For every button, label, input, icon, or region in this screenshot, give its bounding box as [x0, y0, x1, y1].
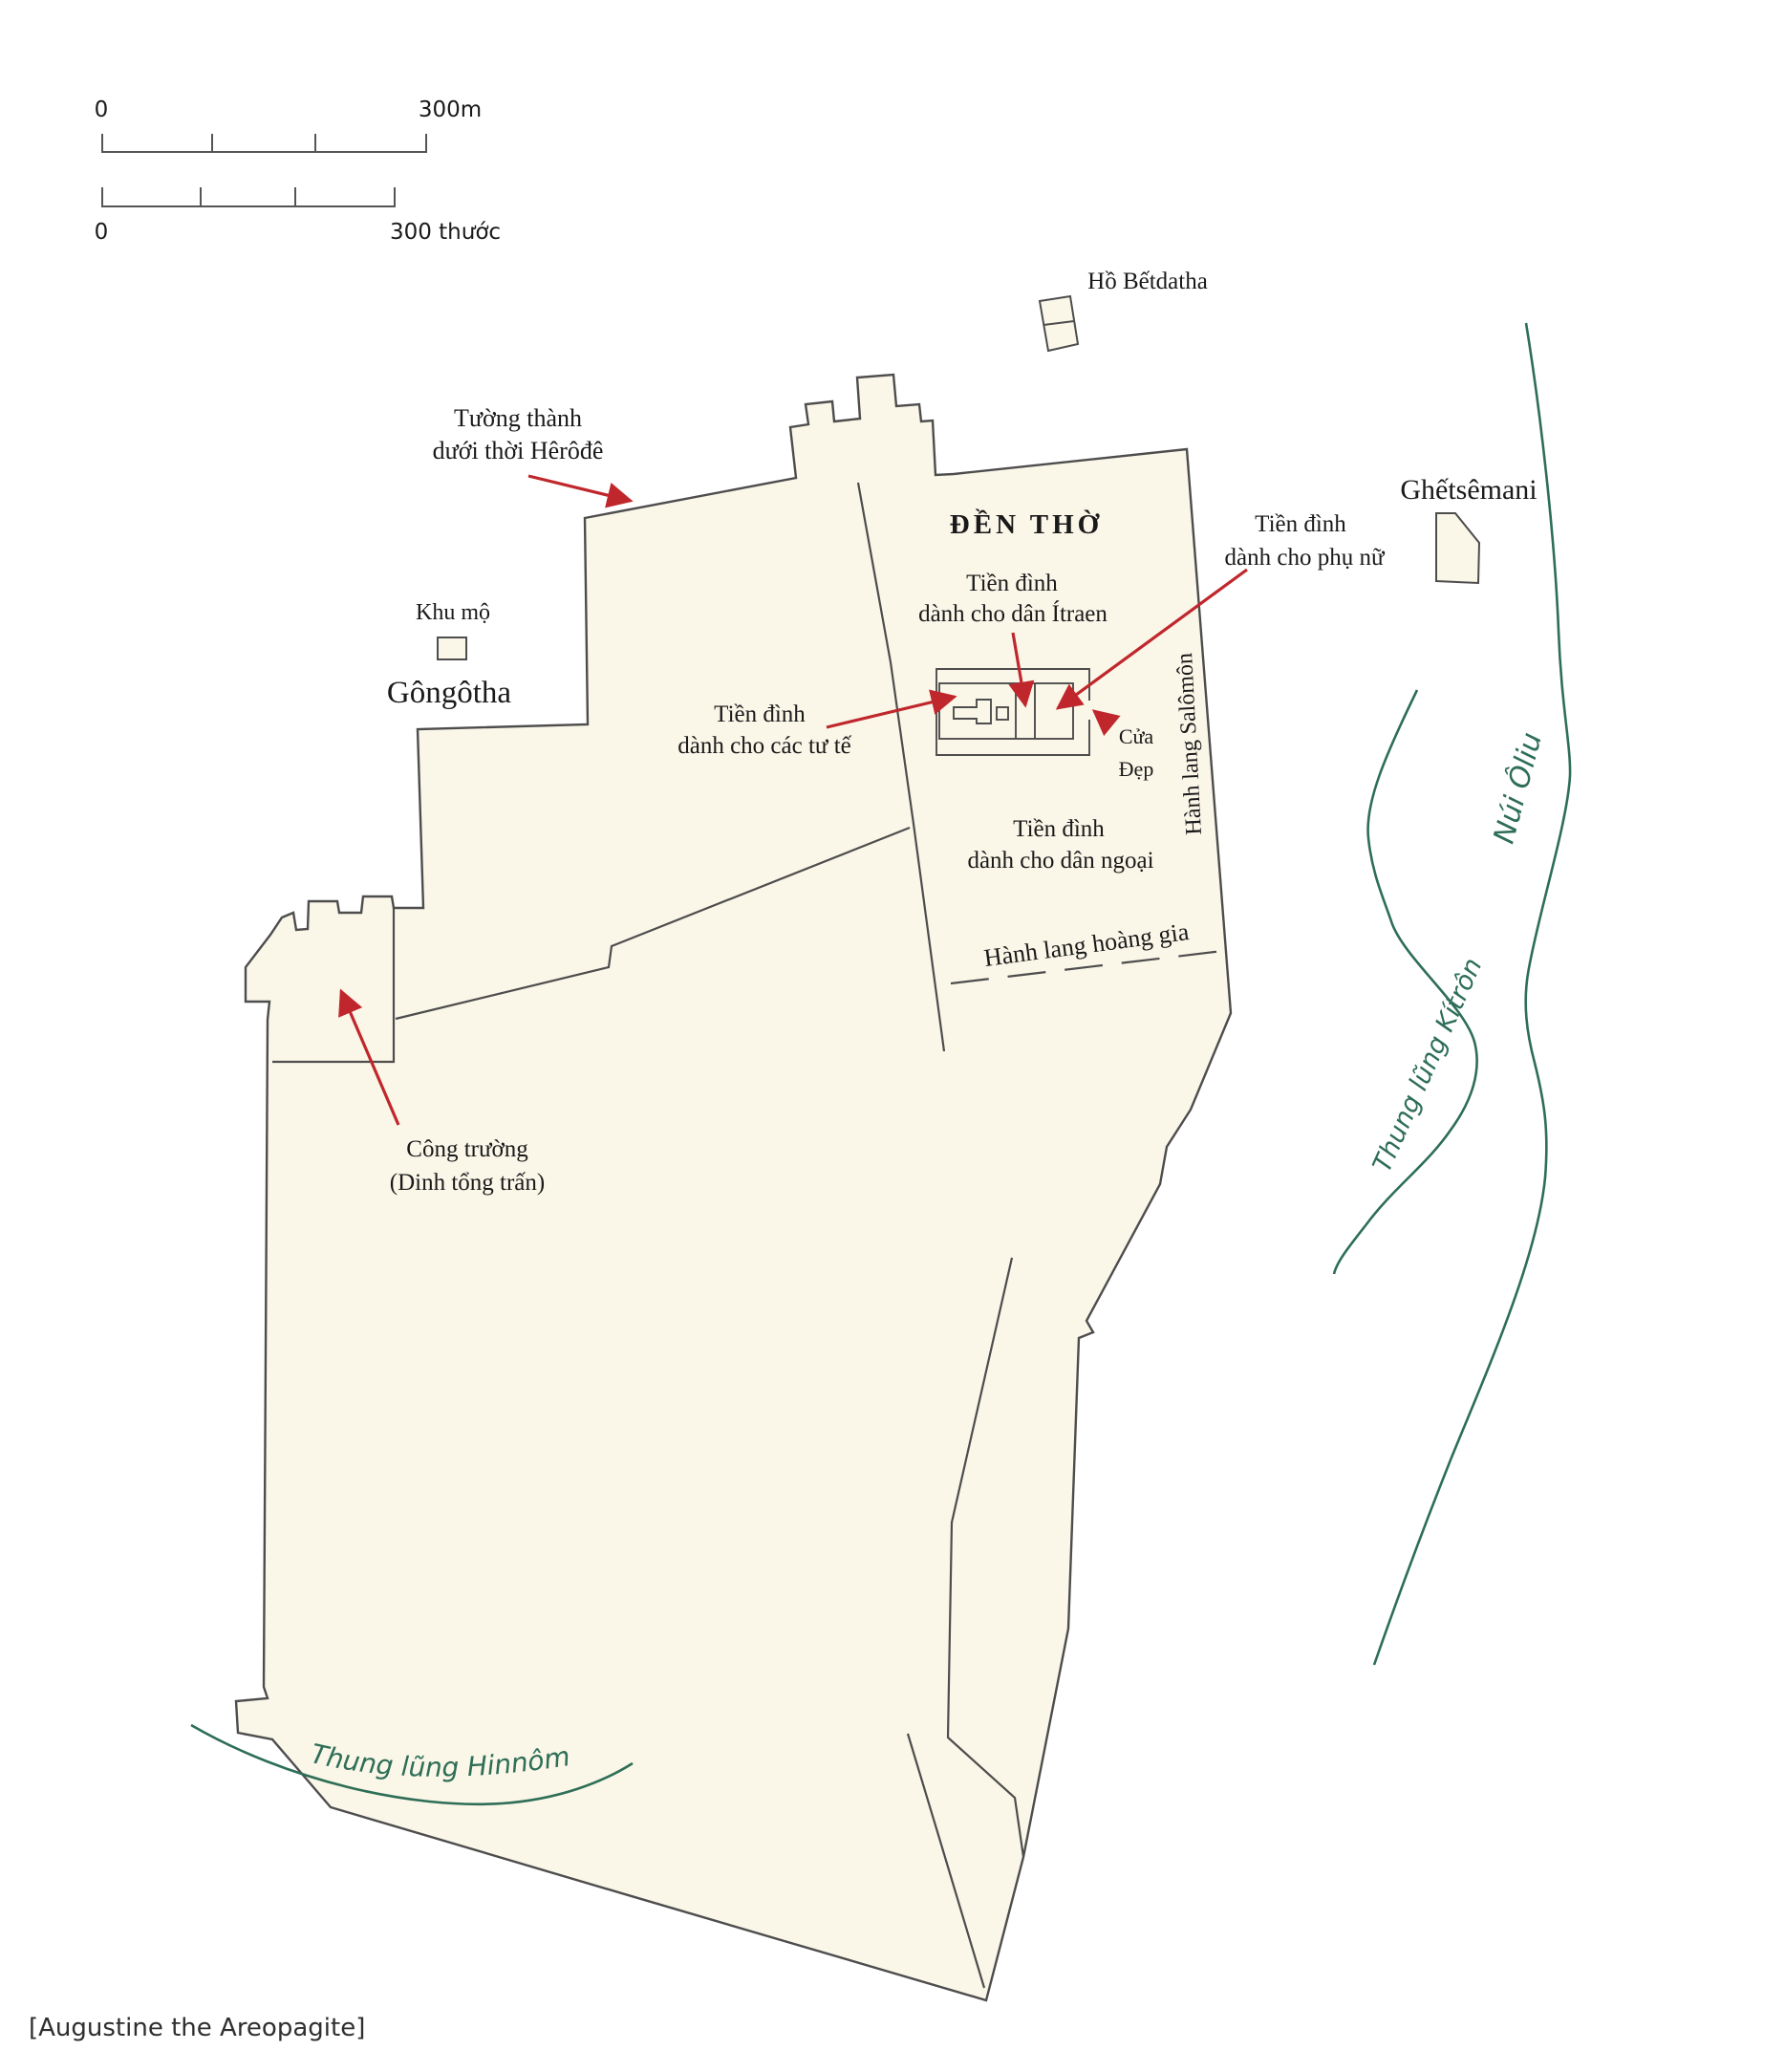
tombs-label: Khu mộ	[416, 600, 490, 625]
gentiles-court-label-line2: dành cho dân ngoại	[967, 848, 1153, 874]
israel-court-label-line2: dành cho dân Ítraen	[918, 600, 1108, 627]
gethsemane-label: Ghếtsêmani	[1400, 474, 1537, 506]
map-canvas: 0 300m 0 300 thước Hồ Bếtdatha Tư	[0, 0, 1785, 2072]
tombs-plot	[438, 637, 466, 659]
temple-label: ĐỀN THỜ	[950, 507, 1103, 540]
bethesda-pool-label: Hồ Bếtdatha	[1087, 269, 1208, 294]
priests-court-label-line2: dành cho các tư tế	[677, 733, 851, 759]
israel-court-label-line1: Tiền đình	[966, 571, 1058, 596]
women-court-label-line1: Tiền đình	[1255, 511, 1346, 537]
kidron-valley-label: Thung lũng Kítrôn	[1367, 954, 1489, 1176]
gentiles-court-label-line1: Tiền đình	[1013, 816, 1105, 842]
gethsemane-plot	[1436, 513, 1479, 583]
scale-bar-local	[102, 187, 395, 206]
scale-bar-metric	[102, 134, 426, 152]
map-caption: [Augustine the Areopagite]	[29, 2014, 365, 2042]
mount-olives-label: Núi Ôliu	[1486, 728, 1549, 847]
scale-metric-zero: 0	[95, 97, 109, 122]
priests-court-label-line1: Tiền đình	[714, 701, 806, 727]
beautiful-gate-label-line1: Cửa	[1119, 724, 1154, 748]
women-court-label-line2: dành cho phụ nữ	[1225, 545, 1386, 571]
forum-label-line2: (Dinh tổng trấn)	[390, 1170, 545, 1196]
bethesda-pool	[1040, 296, 1078, 351]
scale-local-max: 300 thước	[390, 220, 501, 245]
scale-bar: 0 300m 0 300 thước	[95, 97, 501, 245]
herod-wall-arrow	[528, 476, 631, 501]
forum-label-line1: Công trường	[406, 1136, 528, 1162]
beautiful-gate-label-line2: Đẹp	[1119, 757, 1154, 781]
scale-local-zero: 0	[95, 220, 109, 245]
herod-wall-label-line1: Tường thành	[454, 404, 582, 432]
golgotha-label: Gôngôtha	[387, 676, 512, 710]
scale-metric-max: 300m	[419, 97, 482, 122]
jerusalem-map: 0 300m 0 300 thước Hồ Bếtdatha Tư	[0, 0, 1785, 2072]
herod-wall-label-line2: dưới thời Hêrôđê	[433, 437, 604, 464]
